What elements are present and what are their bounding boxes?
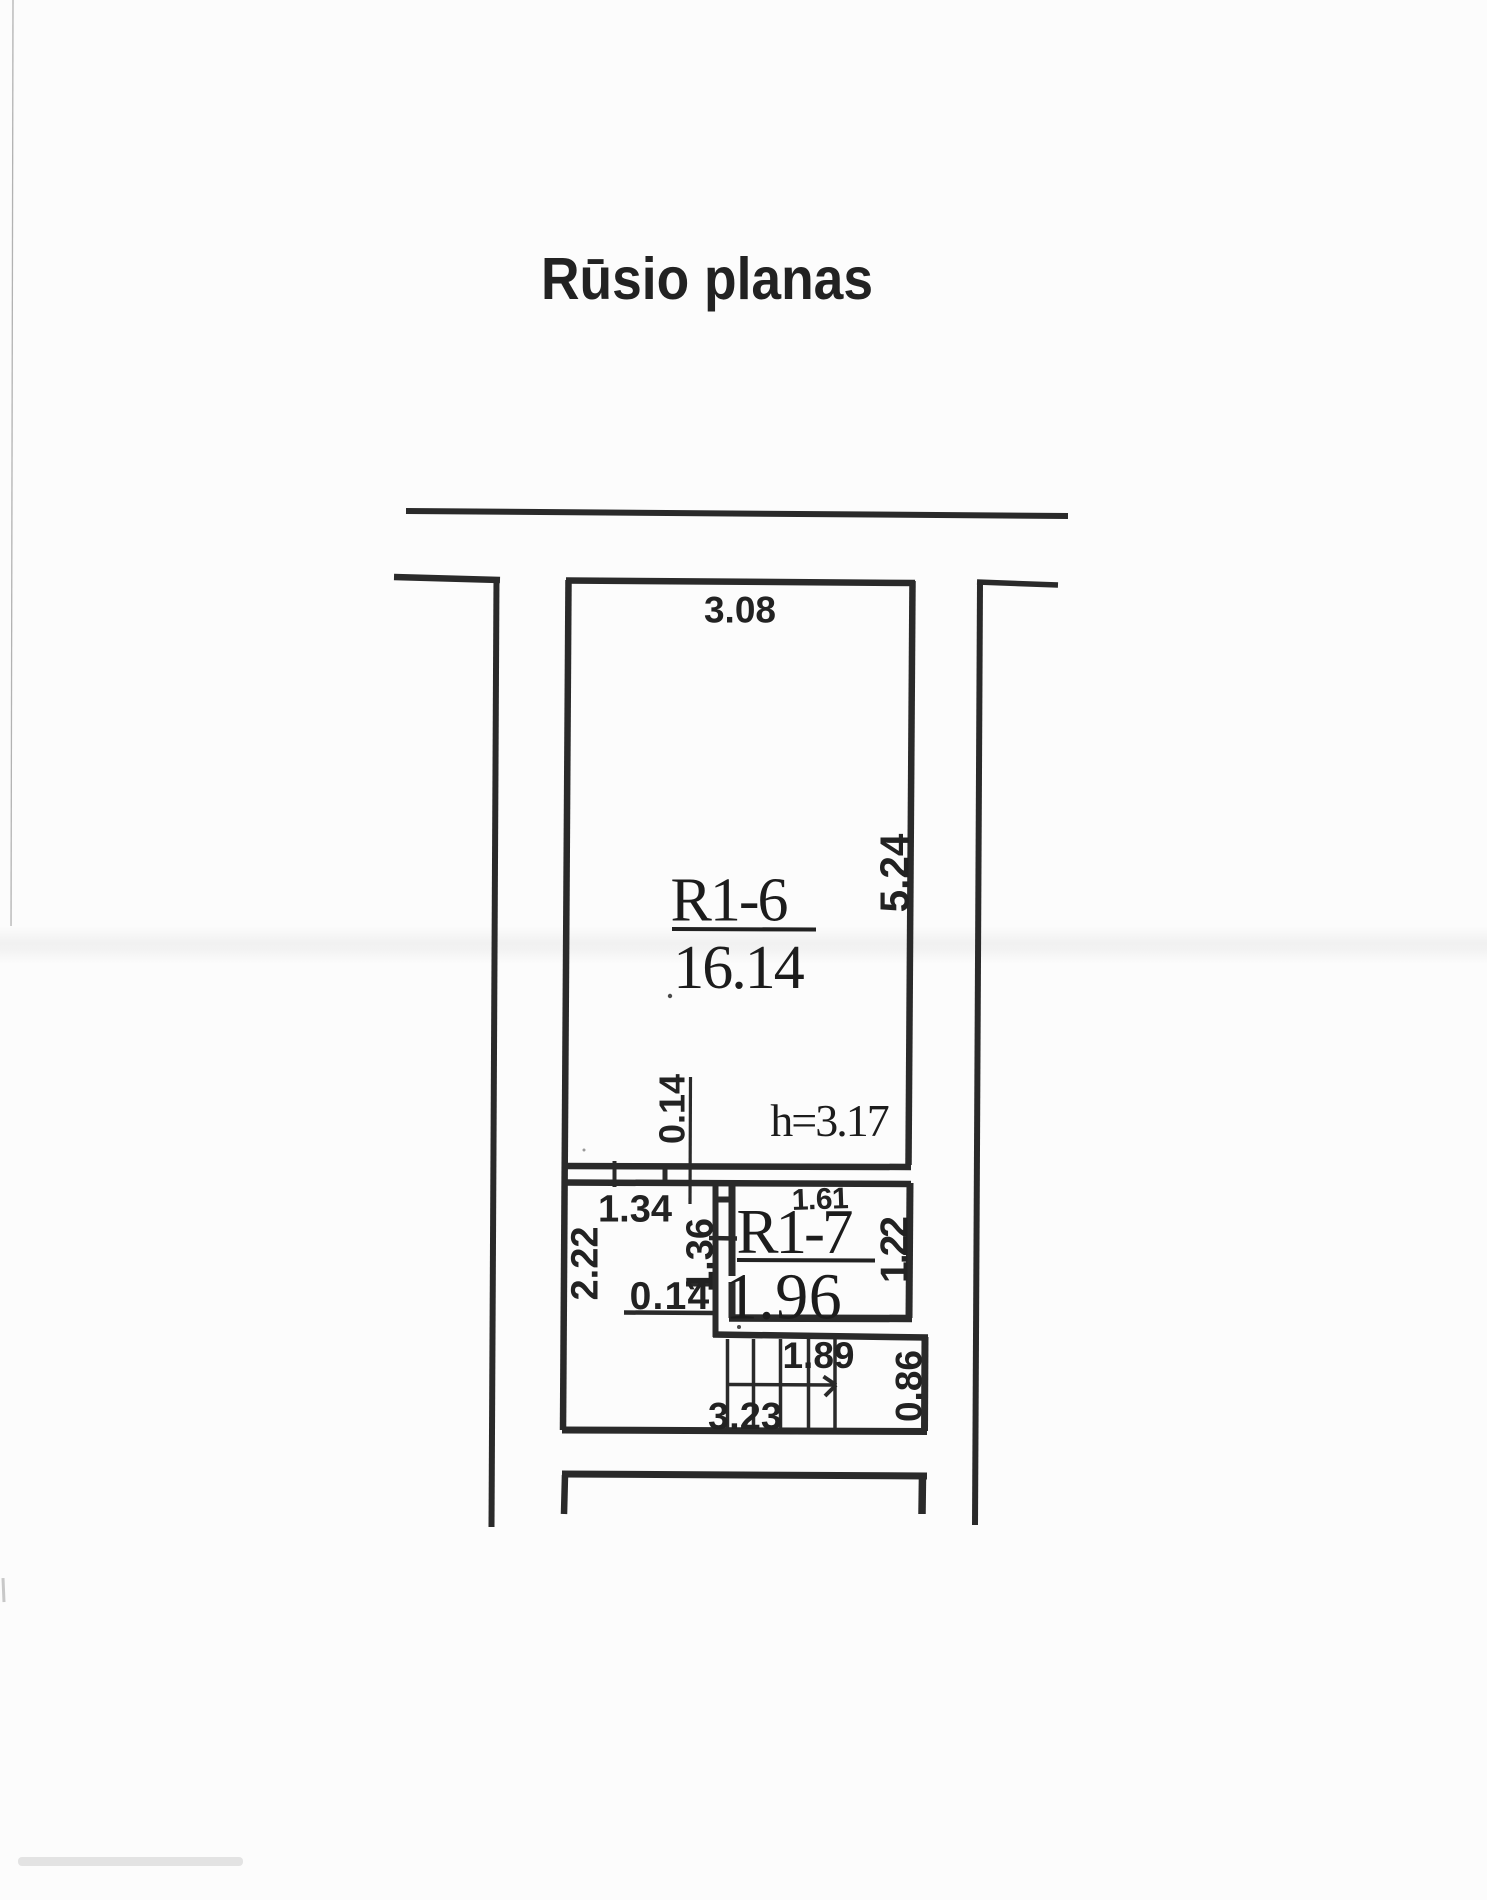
svg-text:0.14: 0.14 bbox=[630, 1275, 711, 1318]
svg-text:R1-6: R1-6 bbox=[671, 867, 788, 935]
svg-text:0.86: 0.86 bbox=[889, 1350, 930, 1422]
svg-text:h=3.17: h=3.17 bbox=[770, 1095, 888, 1146]
svg-text:0.14: 0.14 bbox=[652, 1074, 693, 1144]
svg-text:3.08: 3.08 bbox=[704, 590, 776, 631]
svg-text:Rūsio planas: Rūsio planas bbox=[541, 246, 873, 312]
svg-text:3.23: 3.23 bbox=[708, 1396, 782, 1438]
svg-text:1.22: 1.22 bbox=[874, 1217, 917, 1283]
svg-text:1.34: 1.34 bbox=[598, 1189, 672, 1231]
svg-text:16.14: 16.14 bbox=[673, 934, 805, 1002]
svg-text:2.22: 2.22 bbox=[565, 1227, 607, 1301]
svg-text:R1-7: R1-7 bbox=[737, 1197, 853, 1267]
svg-text:1.96: 1.96 bbox=[725, 1261, 843, 1334]
svg-text:5.24: 5.24 bbox=[872, 833, 918, 912]
svg-text:1.89: 1.89 bbox=[782, 1335, 854, 1376]
